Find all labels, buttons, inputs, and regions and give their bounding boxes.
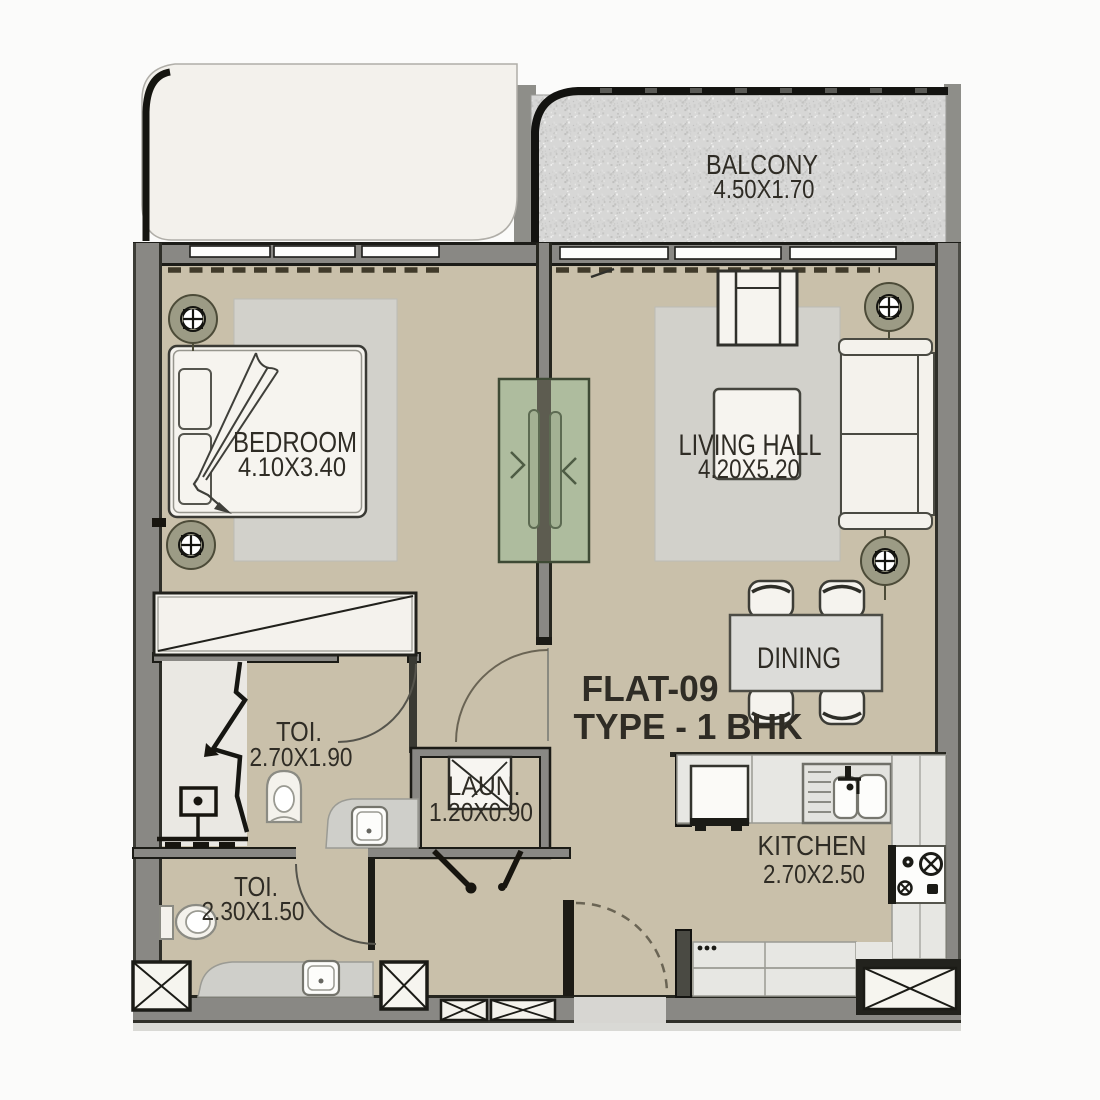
svg-text:4.10X3.40: 4.10X3.40 [238, 452, 346, 482]
svg-text:2.30X1.50: 2.30X1.50 [202, 896, 305, 926]
svg-text:2.70X2.50: 2.70X2.50 [763, 859, 865, 889]
svg-text:TYPE - 1 BHK: TYPE - 1 BHK [574, 706, 803, 747]
svg-text:4.20X5.20: 4.20X5.20 [698, 454, 800, 484]
svg-text:2.70X1.90: 2.70X1.90 [250, 742, 353, 772]
svg-text:1.20X0.90: 1.20X0.90 [429, 797, 533, 827]
svg-text:KITCHEN: KITCHEN [758, 830, 867, 861]
svg-text:DINING: DINING [757, 642, 841, 675]
svg-text:4.50X1.70: 4.50X1.70 [714, 174, 815, 204]
svg-text:FLAT-09: FLAT-09 [582, 668, 719, 709]
